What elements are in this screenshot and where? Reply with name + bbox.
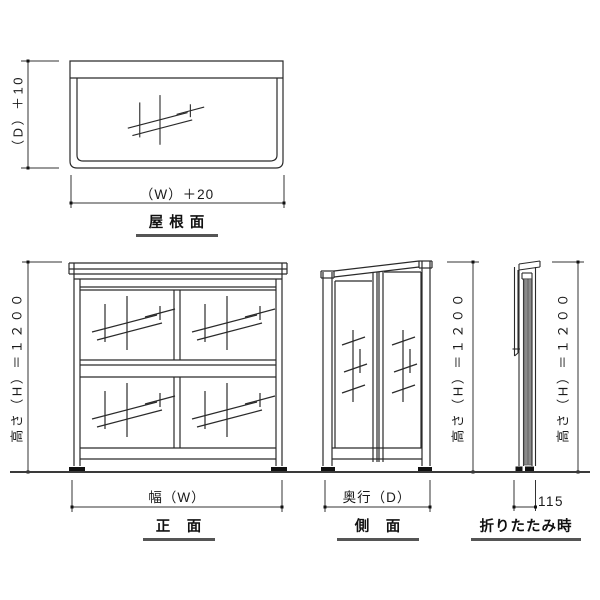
roof-view-caption: 屋 根 面 (136, 211, 218, 237)
front-width-dimension-label: 幅（W） (148, 486, 205, 506)
side-depth-dimension-label: 奥行（D） (343, 486, 412, 506)
side-view-frame (321, 261, 432, 466)
folded-height-dimension-label: 高さ（H）＝１２００ (553, 291, 572, 442)
drawing-linework (0, 0, 600, 600)
front-view-caption: 正 面 (143, 515, 215, 541)
roof-depth-dimension-label: （D）＋10 (8, 75, 27, 153)
front-height-dimension-label: 高さ（H）＝１２００ (7, 291, 26, 442)
folded-view-caption: 折りたたみ時 (471, 515, 581, 541)
roof-width-dimension-label: （W）＋20 (140, 183, 214, 203)
folded-panel-stack (524, 279, 532, 465)
front-dimension-lines (22, 262, 282, 512)
folded-feet (516, 467, 535, 472)
front-glass-hatch-icons (92, 296, 275, 437)
side-height-dimension-label: 高さ（H）＝１２００ (448, 291, 467, 442)
folded-width-dimension-label: 115 (538, 494, 564, 509)
side-view-caption: 側 面 (337, 515, 419, 541)
front-view-frame (69, 263, 287, 466)
roof-glass-hatch-icon (128, 95, 204, 145)
drawing-sheet: （D）＋10 （W）＋20 屋 根 面 高さ（H）＝１２００ 幅（W） 正 面 … (0, 0, 600, 600)
roof-plan-view (70, 61, 283, 168)
